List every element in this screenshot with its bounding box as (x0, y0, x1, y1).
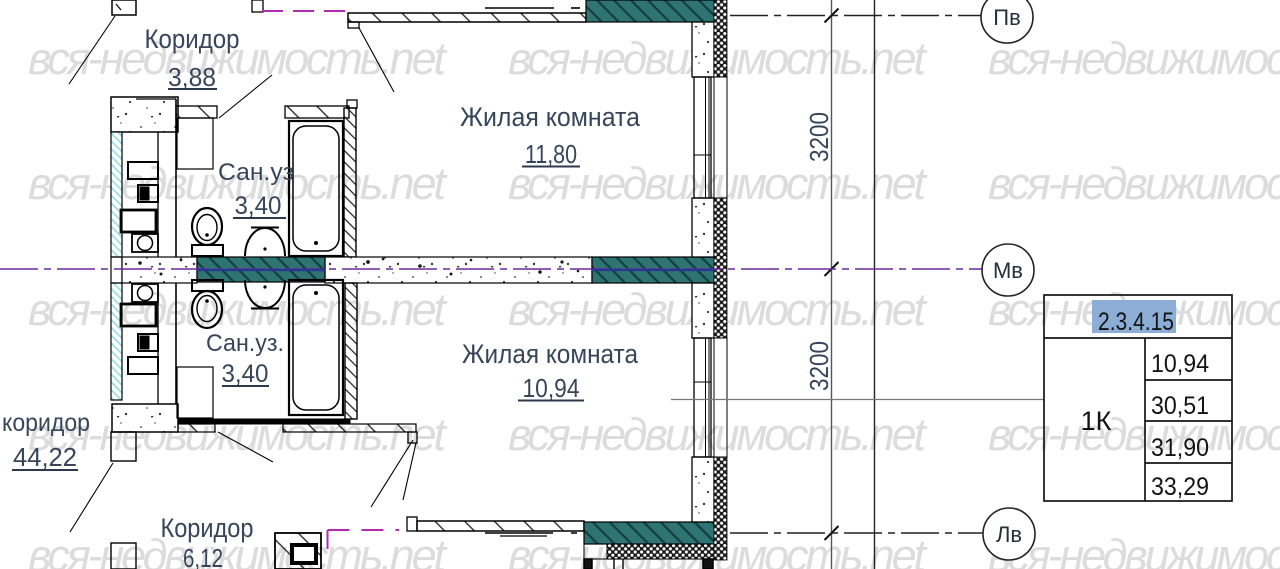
svg-text:Сан.уз.: Сан.уз. (206, 330, 284, 357)
svg-text:3200: 3200 (804, 112, 834, 162)
svg-text:2.3.4.15: 2.3.4.15 (1098, 308, 1174, 336)
svg-text:10,94: 10,94 (523, 373, 580, 403)
svg-text:вся-недвижимость.net: вся-недвижимость.net (508, 409, 928, 460)
svg-text:коридор: коридор (2, 409, 90, 437)
svg-text:вся-недвижимость.net: вся-недвижимость.net (28, 284, 448, 335)
svg-text:Лв: Лв (996, 522, 1022, 547)
svg-text:6,12: 6,12 (183, 543, 223, 569)
svg-text:Коридор: Коридор (145, 24, 240, 54)
svg-text:вся-недвижимость.net: вся-недвижимость.net (988, 158, 1280, 209)
svg-text:Мв: Мв (993, 258, 1023, 283)
svg-text:30,51: 30,51 (1151, 392, 1209, 420)
svg-text:3,40: 3,40 (235, 192, 282, 220)
svg-text:вся-недвижимость.net: вся-недвижимость.net (28, 409, 448, 460)
svg-text:3,88: 3,88 (168, 62, 216, 92)
svg-text:10,94: 10,94 (1151, 350, 1209, 378)
svg-text:вся-недвижимость.net: вся-недвижимость.net (988, 409, 1280, 460)
svg-text:3,40: 3,40 (222, 360, 269, 388)
svg-text:вся-недвижимость.net: вся-недвижимость.net (988, 33, 1280, 84)
svg-text:44,22: 44,22 (13, 442, 77, 472)
svg-text:11,80: 11,80 (525, 139, 577, 169)
svg-text:Жилая комната: Жилая комната (460, 102, 641, 132)
svg-text:Пв: Пв (993, 5, 1021, 30)
svg-text:Сан.уз: Сан.уз (218, 159, 294, 186)
svg-text:Коридор: Коридор (161, 513, 254, 543)
svg-text:33,29: 33,29 (1151, 473, 1209, 501)
svg-text:1К: 1К (1081, 406, 1112, 436)
svg-text:3200: 3200 (804, 341, 834, 391)
svg-text:Жилая комната: Жилая комната (462, 339, 639, 369)
svg-text:31,90: 31,90 (1151, 434, 1209, 462)
